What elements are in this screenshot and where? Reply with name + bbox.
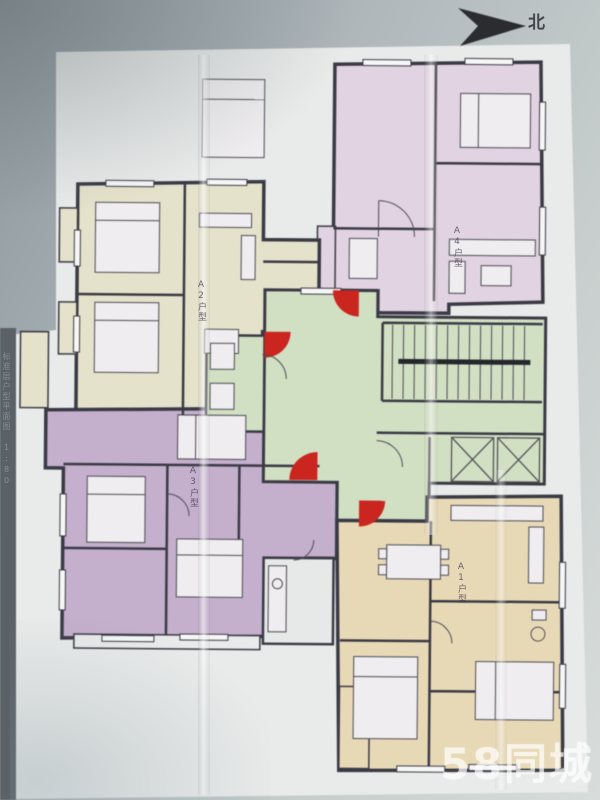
bed-icon bbox=[353, 656, 418, 739]
table-icon bbox=[378, 545, 448, 580]
table-icon bbox=[349, 238, 377, 278]
bed-icon bbox=[176, 539, 243, 598]
bed-icon bbox=[95, 202, 160, 273]
floorplan-svg bbox=[0, 0, 600, 800]
unit-a2-balcony-far-left bbox=[20, 332, 49, 408]
bed-icon bbox=[475, 662, 554, 721]
photo-edge-caption: 标准层户型平面图 1:80 bbox=[1, 352, 12, 522]
bed-icon bbox=[87, 476, 146, 543]
bed-icon bbox=[94, 302, 159, 373]
north-arrow-icon bbox=[458, 8, 526, 46]
unit-label-a1: A1户型 bbox=[456, 562, 465, 604]
unit-label-a4: A4户型 bbox=[452, 226, 461, 268]
photo-layer bbox=[0, 0, 600, 800]
bed-icon bbox=[460, 93, 530, 148]
bed-icon bbox=[177, 415, 245, 460]
kitchen-counter-icon bbox=[268, 566, 287, 632]
unit-label-a3: A3户型 bbox=[188, 466, 197, 508]
unit-label-a2: A2户型 bbox=[196, 280, 205, 322]
compass-north-label: 北 bbox=[528, 8, 545, 33]
watermark-58tongcheng: 58同城 bbox=[440, 730, 594, 792]
floorplan-photo: 北 A4户型 A2户型 A3户型 A1户型 标准层户型平面图 1:80 58同城 bbox=[0, 0, 600, 800]
bed-icon bbox=[202, 79, 265, 158]
